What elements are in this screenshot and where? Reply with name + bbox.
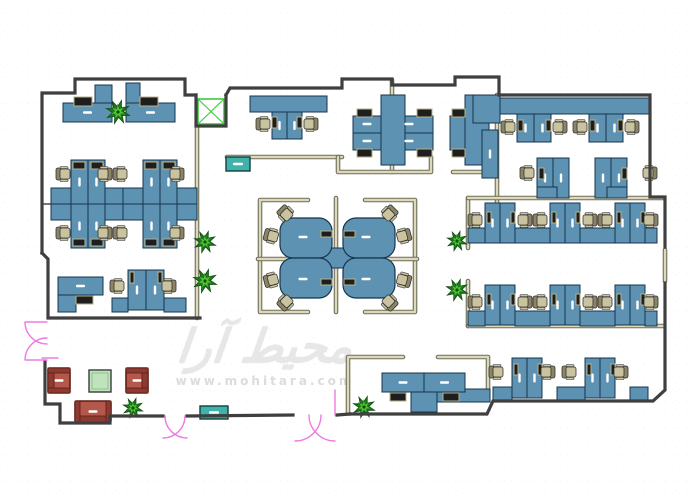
desk-8 bbox=[51, 188, 71, 204]
armchair-left-arm-1 bbox=[48, 368, 70, 373]
chair-part bbox=[98, 169, 108, 179]
desk-label-mark-51 bbox=[491, 301, 493, 310]
plant-icon-core-5 bbox=[362, 405, 365, 408]
sofa-label-mark bbox=[89, 410, 98, 412]
desk-30 bbox=[500, 98, 650, 114]
chair-13 bbox=[170, 167, 184, 182]
chair-part bbox=[602, 215, 612, 225]
plant-icon-core-1 bbox=[203, 240, 206, 243]
desk-67 bbox=[557, 387, 585, 401]
desk-label-mark-62 bbox=[533, 374, 535, 383]
chair-3 bbox=[553, 120, 567, 135]
chair-part bbox=[505, 120, 513, 122]
chair-part bbox=[577, 120, 585, 122]
chair-part bbox=[100, 167, 108, 169]
chair-18 bbox=[533, 213, 547, 228]
monitor-icon-46 bbox=[344, 231, 355, 237]
chair-part bbox=[117, 238, 125, 240]
desk-label-mark-41 bbox=[491, 219, 493, 228]
chair-part bbox=[553, 122, 563, 132]
chair-28 bbox=[489, 365, 503, 380]
chair-16 bbox=[468, 213, 482, 228]
chair-part bbox=[60, 167, 68, 169]
desk-label-mark-x3 bbox=[405, 140, 414, 142]
desk-label-mark-26 bbox=[489, 150, 491, 159]
chair-17 bbox=[518, 213, 532, 228]
chair-24 bbox=[533, 295, 547, 310]
chair-26 bbox=[598, 295, 612, 310]
chair-part bbox=[493, 377, 501, 379]
monitor-icon-20 bbox=[590, 120, 595, 131]
chair-part bbox=[537, 295, 545, 297]
chair-part bbox=[627, 132, 635, 134]
wall-segment-6 bbox=[187, 415, 293, 416]
desk-label-mark-55 bbox=[621, 301, 623, 310]
desk-label-mark-70 bbox=[440, 381, 449, 383]
chair-part bbox=[543, 377, 551, 379]
monitor-icon-23 bbox=[622, 168, 627, 179]
desk-label-mark-38 bbox=[602, 174, 604, 183]
desk-label-mark-43 bbox=[556, 219, 558, 228]
chair-part bbox=[117, 228, 127, 238]
chair-part bbox=[602, 295, 610, 297]
chair-part bbox=[164, 291, 172, 293]
chair-part bbox=[537, 307, 545, 309]
desk-48 bbox=[515, 228, 550, 243]
desk-71 bbox=[411, 392, 437, 412]
chair-part bbox=[172, 226, 180, 228]
chair-9 bbox=[98, 167, 112, 182]
chair-part bbox=[583, 297, 593, 307]
chair-5 bbox=[625, 120, 639, 135]
monitor-icon-43 bbox=[130, 272, 134, 283]
monitor-icon-17 bbox=[297, 117, 302, 128]
chair-part bbox=[537, 215, 547, 225]
desk-17 bbox=[177, 188, 197, 204]
chair-33 bbox=[162, 279, 176, 294]
chair-part bbox=[585, 295, 593, 297]
chair-part bbox=[520, 213, 528, 215]
desk-label-mark-28 bbox=[278, 121, 280, 130]
desk-label-mark-7 bbox=[95, 222, 97, 231]
chair-part bbox=[524, 168, 534, 178]
monitor-icon-48 bbox=[344, 279, 355, 285]
chair-part bbox=[306, 129, 314, 131]
chair-15 bbox=[170, 226, 184, 241]
chair-part bbox=[306, 117, 314, 119]
monitor-icon-41 bbox=[443, 393, 459, 401]
chair-part bbox=[164, 279, 172, 281]
monitor-icon-4 bbox=[73, 239, 85, 246]
chair-part bbox=[172, 238, 180, 240]
chair-part bbox=[304, 119, 314, 129]
chair-0 bbox=[256, 117, 270, 132]
desk-22 bbox=[381, 95, 405, 165]
desk-label-mark-x1 bbox=[405, 123, 414, 125]
monitor-icon-10 bbox=[357, 109, 372, 117]
monitor-icon-12 bbox=[357, 149, 372, 157]
desk-10 bbox=[51, 204, 71, 220]
desk-label-mark-42 bbox=[506, 219, 508, 228]
chair-part bbox=[172, 167, 180, 169]
chair-part bbox=[577, 132, 585, 134]
desk-label-mark-74 bbox=[136, 286, 138, 295]
chair-part bbox=[616, 377, 624, 379]
chair-part bbox=[614, 367, 624, 377]
chair-part bbox=[493, 365, 501, 367]
floor-plan-canvas bbox=[0, 0, 700, 495]
door-arc-0 bbox=[25, 322, 58, 360]
desk-9 bbox=[105, 188, 125, 204]
chair-part bbox=[537, 213, 545, 215]
chair-40 bbox=[395, 271, 412, 289]
monitor-icon-2 bbox=[73, 162, 85, 169]
monitor-icon-31 bbox=[511, 294, 515, 305]
monitor-icon-22 bbox=[539, 168, 544, 179]
desk-label-mark-5 bbox=[95, 178, 97, 187]
chair-part bbox=[162, 281, 172, 291]
wall-segment-7 bbox=[337, 414, 350, 415]
monitor-icon-0 bbox=[74, 97, 92, 106]
desk-label-mark-72 bbox=[76, 285, 85, 287]
chair-part bbox=[60, 226, 68, 228]
chair-8 bbox=[56, 167, 70, 182]
monitor-icon-18 bbox=[518, 120, 523, 131]
chair-37 bbox=[395, 227, 412, 245]
chair-part bbox=[566, 365, 574, 367]
chair-part bbox=[117, 226, 125, 228]
chair-part bbox=[602, 297, 612, 307]
chair-part bbox=[555, 132, 563, 134]
monitor-icon-28 bbox=[617, 212, 621, 223]
counter-label-mark-1 bbox=[209, 411, 219, 413]
monitor-icon-38 bbox=[587, 364, 591, 375]
chair-part bbox=[472, 307, 480, 309]
monitor-icon-45 bbox=[321, 231, 332, 237]
chair-part bbox=[170, 169, 180, 179]
monitor-icon-1 bbox=[140, 97, 158, 106]
desk-label-mark-x2 bbox=[363, 140, 372, 142]
desk-label-mark-31 bbox=[524, 124, 526, 133]
chair-part bbox=[577, 122, 587, 132]
desk-label-mark-13 bbox=[167, 178, 169, 187]
chair-29 bbox=[541, 365, 555, 380]
plant-icon-core-3 bbox=[455, 239, 458, 242]
desk-label-mark-52 bbox=[506, 301, 508, 310]
armchair-left-label-mark bbox=[55, 379, 64, 381]
chair-part bbox=[541, 367, 551, 377]
chair-part bbox=[505, 122, 515, 132]
desk-label-mark-29 bbox=[293, 121, 295, 130]
chair-part bbox=[602, 307, 610, 309]
chair-30 bbox=[562, 365, 576, 380]
desk-label-mark-36 bbox=[560, 174, 562, 183]
chair-22 bbox=[468, 295, 482, 310]
chair-part bbox=[646, 295, 654, 297]
chair-part bbox=[524, 178, 532, 180]
chair-6 bbox=[520, 166, 534, 181]
desk-77 bbox=[164, 298, 186, 312]
chair-21 bbox=[644, 213, 658, 228]
monitor-icon-19 bbox=[546, 120, 551, 131]
desk-label-mark-x7 bbox=[362, 278, 371, 280]
chair-32 bbox=[110, 279, 124, 294]
armchair-left-arm-2 bbox=[48, 388, 70, 393]
chair-part bbox=[585, 213, 593, 215]
desk-label-mark-34 bbox=[613, 124, 615, 133]
chair-11 bbox=[98, 226, 112, 241]
monitor-icon-33 bbox=[576, 294, 580, 305]
chair-part bbox=[537, 225, 545, 227]
chair-part bbox=[524, 166, 532, 168]
chair-part bbox=[627, 120, 635, 122]
chair-part bbox=[472, 213, 480, 215]
desk-label-mark-63 bbox=[591, 374, 593, 383]
plant-icon-core-4 bbox=[455, 288, 458, 291]
desk-label-mark-2 bbox=[146, 111, 155, 113]
chair-10 bbox=[56, 226, 70, 241]
chair-part bbox=[566, 367, 576, 377]
chair-14 bbox=[113, 226, 127, 241]
chair-part bbox=[114, 291, 122, 293]
chair-31 bbox=[614, 365, 628, 380]
chair-part bbox=[170, 228, 180, 238]
chair-part bbox=[260, 117, 268, 119]
desk-57 bbox=[468, 311, 485, 326]
desk-label-mark-x4 bbox=[299, 236, 308, 238]
desk-60 bbox=[645, 311, 657, 326]
chair-part bbox=[520, 295, 528, 297]
chair-part bbox=[60, 169, 70, 179]
desk-40 bbox=[607, 187, 627, 198]
chair-part bbox=[114, 279, 122, 281]
chair-part bbox=[644, 215, 654, 225]
sofa-back bbox=[75, 416, 111, 422]
chair-part bbox=[100, 179, 108, 181]
chair-part bbox=[117, 179, 125, 181]
monitor-icon-27 bbox=[576, 212, 580, 223]
chair-part bbox=[555, 120, 563, 122]
monitor-icon-21 bbox=[618, 120, 623, 131]
chair-part bbox=[646, 307, 654, 309]
chair-part bbox=[602, 213, 610, 215]
chair-part bbox=[518, 215, 528, 225]
desk-label-mark-56 bbox=[636, 301, 638, 310]
chair-part bbox=[616, 365, 624, 367]
desk-23 bbox=[450, 116, 465, 150]
chair-part bbox=[60, 179, 68, 181]
chair-part bbox=[583, 215, 593, 225]
desk-19 bbox=[177, 204, 197, 220]
monitor-icon-24 bbox=[487, 212, 491, 223]
monitor-icon-30 bbox=[487, 294, 491, 305]
chair-part bbox=[537, 297, 547, 307]
desk-59 bbox=[580, 311, 615, 326]
monitor-icon-16 bbox=[272, 117, 277, 128]
desk-25 bbox=[473, 95, 500, 123]
desk-label-mark-64 bbox=[606, 374, 608, 383]
chair-4 bbox=[573, 120, 587, 135]
chair-part bbox=[493, 367, 503, 377]
monitor-icon-40 bbox=[390, 393, 406, 401]
chair-part bbox=[543, 365, 551, 367]
chair-part bbox=[646, 225, 654, 227]
desk-label-mark-44 bbox=[571, 219, 573, 228]
chair-part bbox=[260, 129, 268, 131]
monitor-icon-8 bbox=[145, 239, 157, 246]
chair-19 bbox=[583, 213, 597, 228]
chair-part bbox=[472, 215, 482, 225]
chair-part bbox=[625, 122, 635, 132]
chair-35 bbox=[262, 227, 279, 245]
chair-38 bbox=[262, 271, 279, 289]
chair-27 bbox=[644, 295, 658, 310]
desk-label-mark-33 bbox=[596, 124, 598, 133]
monitor-icon-26 bbox=[552, 212, 556, 223]
chair-part bbox=[472, 225, 480, 227]
desk-73 bbox=[58, 295, 76, 312]
desk-label-mark-54 bbox=[571, 301, 573, 310]
chair-20 bbox=[598, 213, 612, 228]
desk-label-mark-46 bbox=[636, 219, 638, 228]
monitor-icon-14 bbox=[452, 109, 465, 117]
monitor-icon-32 bbox=[552, 294, 556, 305]
desk-label-mark-x0 bbox=[363, 123, 372, 125]
desk-label-mark-12 bbox=[150, 178, 152, 187]
chair-2 bbox=[501, 120, 515, 135]
sofa-arm-1 bbox=[75, 401, 80, 422]
desk-11 bbox=[105, 204, 125, 220]
chair-part bbox=[472, 295, 480, 297]
monitor-icon-25 bbox=[511, 212, 515, 223]
desk-label-mark-0 bbox=[83, 111, 92, 113]
desk-label-mark-32 bbox=[541, 124, 543, 133]
desk-50 bbox=[645, 228, 657, 243]
chair-part bbox=[98, 228, 108, 238]
desk-label-mark-6 bbox=[78, 222, 80, 231]
chair-part bbox=[520, 225, 528, 227]
desk-27 bbox=[250, 96, 327, 112]
monitor-icon-11 bbox=[417, 109, 432, 117]
chair-12 bbox=[113, 167, 127, 182]
door-arc-1 bbox=[163, 416, 187, 438]
chair-part bbox=[646, 213, 654, 215]
desk-label-mark-14 bbox=[150, 222, 152, 231]
desk-label-mark-75 bbox=[154, 286, 156, 295]
desk-37 bbox=[537, 187, 557, 198]
chair-part bbox=[260, 119, 270, 129]
plant-icon-core-0 bbox=[116, 110, 119, 113]
desk-49 bbox=[580, 228, 615, 243]
desk-3 bbox=[126, 83, 140, 103]
chair-part bbox=[60, 228, 70, 238]
desk-label-mark-61 bbox=[518, 374, 520, 383]
monitor-icon-6 bbox=[145, 162, 157, 169]
chair-1 bbox=[304, 117, 318, 132]
desk-label-mark-69 bbox=[399, 381, 408, 383]
chair-part bbox=[172, 179, 180, 181]
chair-part bbox=[100, 238, 108, 240]
chair-part bbox=[60, 238, 68, 240]
desk-label-mark-x6 bbox=[299, 278, 308, 280]
chair-part bbox=[602, 225, 610, 227]
monitor-icon-15 bbox=[452, 149, 465, 157]
chair-part bbox=[114, 281, 124, 291]
armchair-right-label-mark bbox=[133, 379, 142, 381]
floor-plan: محیط آرا www.mohitara.com bbox=[0, 0, 700, 495]
monitor-icon-47 bbox=[321, 279, 332, 285]
desk-1 bbox=[95, 85, 112, 103]
plant-icon-core-6 bbox=[131, 406, 134, 409]
desk-label-mark-53 bbox=[556, 301, 558, 310]
chair-25 bbox=[583, 295, 597, 310]
desk-47 bbox=[468, 228, 485, 243]
desk-66 bbox=[493, 387, 512, 401]
armchair-right-arm-2 bbox=[126, 388, 148, 393]
monitor-icon-36 bbox=[514, 364, 518, 375]
monitor-icon-44 bbox=[158, 272, 162, 283]
monitor-icon-13 bbox=[417, 149, 432, 157]
armchair-right-arm-1 bbox=[126, 368, 148, 373]
desk-68 bbox=[630, 387, 648, 401]
desk-16 bbox=[123, 188, 143, 204]
desk-label-mark-45 bbox=[621, 219, 623, 228]
chair-part bbox=[505, 132, 513, 134]
desk-label-mark-39 bbox=[618, 174, 620, 183]
chair-part bbox=[566, 377, 574, 379]
chair-part bbox=[117, 167, 125, 169]
chair-part bbox=[472, 297, 482, 307]
desk-76 bbox=[112, 298, 128, 312]
chair-part bbox=[520, 307, 528, 309]
chair-part bbox=[585, 225, 593, 227]
monitor-icon-42 bbox=[76, 296, 93, 304]
chair-part bbox=[117, 169, 127, 179]
monitor-icon-34 bbox=[617, 294, 621, 305]
chair-part bbox=[644, 297, 654, 307]
chair-23 bbox=[518, 295, 532, 310]
desk-label-mark-15 bbox=[167, 222, 169, 231]
counter-label-mark-0 bbox=[233, 163, 243, 165]
desk-label-mark-x5 bbox=[362, 236, 371, 238]
desk-18 bbox=[123, 204, 143, 220]
chair-part bbox=[585, 307, 593, 309]
chair-part bbox=[518, 297, 528, 307]
chair-part bbox=[100, 226, 108, 228]
plant-icon-core-2 bbox=[203, 279, 206, 282]
desk-label-mark-4 bbox=[78, 178, 80, 187]
desk-58 bbox=[515, 311, 550, 326]
door-arc-2 bbox=[295, 390, 335, 441]
